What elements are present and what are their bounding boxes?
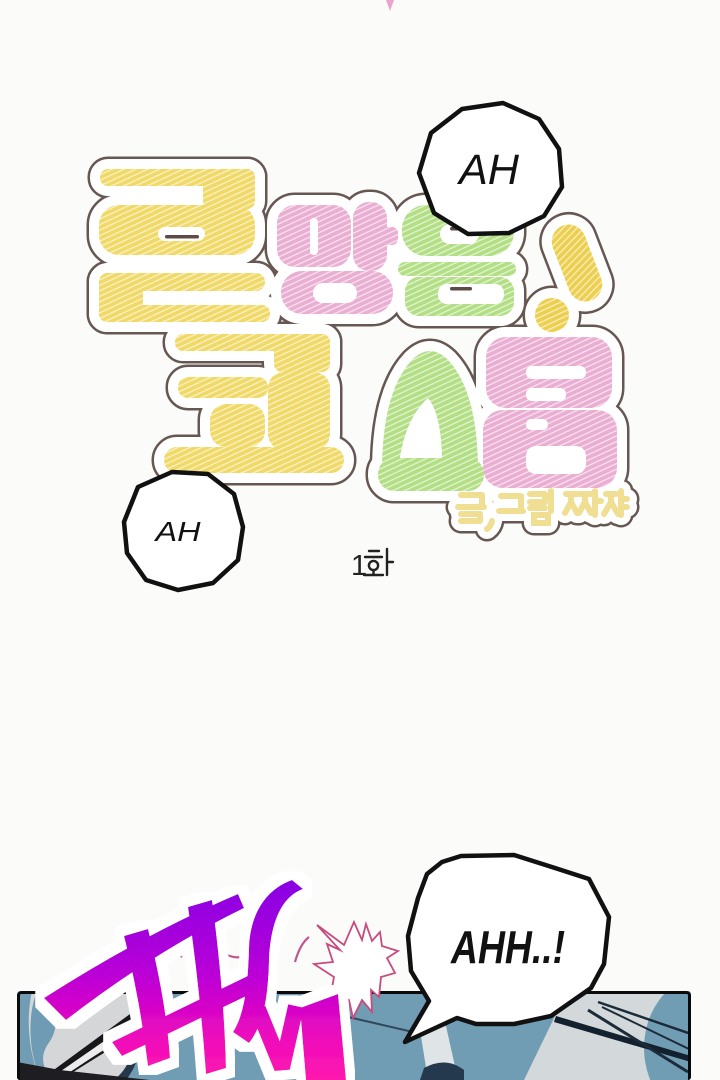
svg-text:1: 1 <box>351 550 367 582</box>
svg-text:AHH..!: AHH..! <box>450 921 565 973</box>
svg-text:AH: AH <box>153 516 201 547</box>
svg-text:AH: AH <box>456 146 520 194</box>
